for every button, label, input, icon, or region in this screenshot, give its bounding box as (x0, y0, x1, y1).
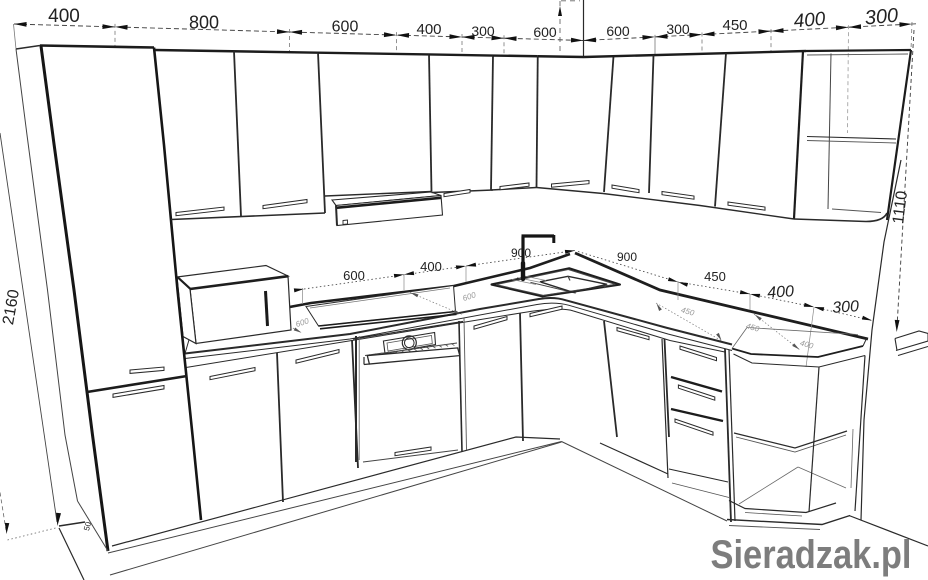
svg-text:300: 300 (666, 21, 690, 37)
svg-text:400: 400 (416, 21, 441, 38)
svg-text:Sieradzak.pl: Sieradzak.pl (711, 533, 912, 577)
svg-text:800: 800 (189, 13, 219, 33)
svg-text:450: 450 (704, 269, 726, 284)
svg-text:600: 600 (606, 23, 630, 39)
svg-text:400: 400 (420, 259, 442, 274)
svg-text:600: 600 (332, 19, 359, 36)
svg-text:400: 400 (48, 6, 80, 27)
svg-text:300: 300 (864, 5, 899, 30)
svg-text:600: 600 (533, 24, 557, 40)
svg-text:400: 400 (793, 9, 827, 33)
svg-text:450: 450 (722, 17, 747, 34)
svg-text:600: 600 (343, 268, 365, 283)
svg-text:300: 300 (471, 23, 495, 39)
svg-text:300: 300 (832, 298, 860, 317)
svg-text:400: 400 (767, 283, 795, 302)
svg-text:900: 900 (511, 246, 531, 260)
svg-text:900: 900 (617, 250, 637, 264)
